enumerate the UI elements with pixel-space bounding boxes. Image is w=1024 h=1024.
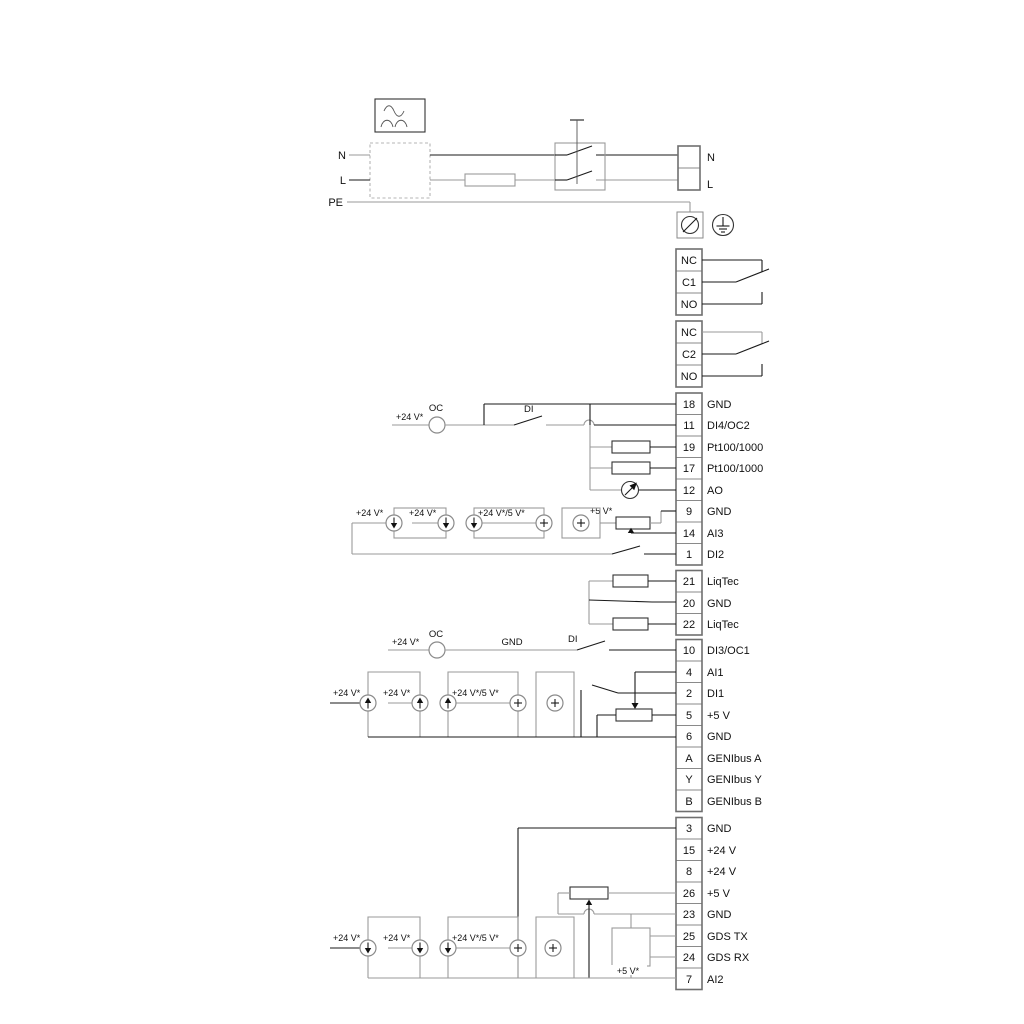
fuse-icon bbox=[465, 174, 515, 186]
di-switch-icon bbox=[592, 685, 618, 693]
open-collector-icon bbox=[429, 417, 445, 433]
terminal-label: LiqTec bbox=[707, 619, 739, 631]
current-source-icon bbox=[360, 695, 376, 711]
terminal-label: DI3/OC1 bbox=[707, 645, 750, 657]
relay2-contact-icon bbox=[702, 332, 769, 376]
terminal-number: 11 bbox=[683, 420, 694, 432]
gds-sensor-box bbox=[612, 928, 650, 966]
analog-output-meter bbox=[590, 482, 676, 499]
v24-5v-label: +24 V*/5 V* bbox=[478, 508, 525, 518]
current-source-icon bbox=[360, 940, 376, 956]
relay1-no: NO bbox=[681, 299, 698, 311]
v24-label: +24 V* bbox=[392, 637, 420, 647]
terminal-number: 4 bbox=[686, 667, 692, 679]
terminal-number: 19 bbox=[683, 442, 695, 454]
terminal-number: 20 bbox=[683, 598, 695, 610]
current-source-icon bbox=[438, 515, 454, 531]
mains-l-label: L bbox=[340, 175, 346, 187]
relay1-com: C1 bbox=[682, 277, 696, 289]
terminal-label: AI2 bbox=[707, 974, 724, 986]
terminal-n-label: N bbox=[707, 152, 715, 164]
terminal-label: DI1 bbox=[707, 688, 724, 700]
terminal-group-3: 10 DI3/OC1 4 AI1 2 DI1 5 +5 V 6 GND A GE… bbox=[676, 640, 762, 812]
resistor-icon bbox=[613, 618, 648, 630]
open-collector-icon bbox=[429, 642, 445, 658]
mains-section: N L PE bbox=[328, 99, 733, 238]
terminal-number: 8 bbox=[686, 866, 692, 878]
resistor-icon bbox=[612, 441, 650, 453]
terminal-number: 18 bbox=[683, 399, 695, 411]
di-switch-icon bbox=[577, 641, 605, 650]
mains-n-label: N bbox=[338, 150, 346, 162]
terminal-number: 15 bbox=[683, 845, 695, 857]
mains-pe-label: PE bbox=[328, 197, 343, 209]
terminal-label: GDS RX bbox=[707, 952, 750, 964]
v24-label: +24 V* bbox=[356, 508, 384, 518]
terminal-label: AI1 bbox=[707, 667, 724, 679]
v24-label: +24 V* bbox=[383, 688, 411, 698]
terminal-label: GENIbus A bbox=[707, 753, 762, 765]
v24-label: +24 V* bbox=[396, 412, 424, 422]
terminal-label: GND bbox=[707, 598, 732, 610]
terminal-label: +24 V bbox=[707, 866, 737, 878]
terminal-label: DI2 bbox=[707, 549, 724, 561]
pt100-sensor-2 bbox=[590, 462, 676, 474]
terminal-label: Pt100/1000 bbox=[707, 463, 763, 475]
voltage-source-icon bbox=[573, 515, 589, 531]
terminal-number: 23 bbox=[683, 909, 695, 921]
terminal-label: GDS TX bbox=[707, 931, 748, 943]
di-switch-icon bbox=[612, 546, 640, 554]
voltage-source-icon bbox=[536, 515, 552, 531]
terminal-number: 26 bbox=[683, 888, 695, 900]
terminal-number: 22 bbox=[683, 619, 695, 631]
terminal-label: Pt100/1000 bbox=[707, 442, 763, 454]
liqtec-circuit bbox=[589, 575, 676, 630]
voltage-source-icon bbox=[547, 695, 563, 711]
terminal-number: 21 bbox=[683, 576, 695, 588]
di-switch-icon bbox=[514, 416, 542, 425]
resistor-icon bbox=[612, 462, 650, 474]
terminal-label: DI4/OC2 bbox=[707, 420, 750, 432]
terminal-number: 3 bbox=[686, 823, 692, 835]
potentiometer-icon bbox=[616, 709, 652, 721]
relay-1-block: NC C1 NO bbox=[676, 249, 769, 315]
wiper-arrow bbox=[586, 900, 592, 906]
v24-5v-label: +24 V*/5 V* bbox=[452, 933, 499, 943]
oc-label: OC bbox=[429, 629, 443, 640]
oc-label: OC bbox=[429, 403, 443, 414]
terminal-number: 12 bbox=[683, 485, 695, 497]
terminal-number: 1 bbox=[686, 549, 692, 561]
terminal-number: 25 bbox=[683, 931, 695, 943]
voltage-source-icon bbox=[545, 940, 561, 956]
di-label: DI bbox=[568, 634, 578, 645]
terminal-number: 14 bbox=[683, 528, 695, 540]
terminal-number: 6 bbox=[686, 731, 692, 743]
gnd-label: GND bbox=[501, 637, 522, 648]
terminal-label: +5 V bbox=[707, 888, 731, 900]
option-frame bbox=[448, 672, 518, 737]
current-source-icon bbox=[440, 940, 456, 956]
v24-5v-label: +24 V*/5 V* bbox=[452, 688, 499, 698]
terminal-label: GND bbox=[707, 731, 732, 743]
ai1-source-options: +24 V* +24 V* +24 V*/5 V* bbox=[330, 672, 676, 737]
terminal-label: LiqTec bbox=[707, 576, 739, 588]
current-source-icon bbox=[466, 515, 482, 531]
pt100-sensor-1 bbox=[590, 441, 676, 453]
current-source-icon bbox=[412, 695, 428, 711]
terminal-number: Y bbox=[685, 774, 693, 786]
di3-oc1-circuit: +24 V* OC GND DI bbox=[388, 629, 676, 658]
voltage-source-icon bbox=[510, 940, 526, 956]
terminal-number: 7 bbox=[686, 974, 692, 986]
terminal-number: B bbox=[685, 796, 692, 808]
potentiometer-icon bbox=[616, 517, 650, 529]
terminal-number: 10 bbox=[683, 645, 695, 657]
terminal-label: GND bbox=[707, 399, 732, 411]
wire-hop bbox=[584, 420, 594, 425]
terminal-number: A bbox=[685, 753, 693, 765]
earth-ground-icon bbox=[713, 215, 734, 236]
current-source-icon bbox=[440, 695, 456, 711]
terminal-number: 2 bbox=[686, 688, 692, 700]
wiper-arrow bbox=[632, 703, 639, 709]
terminal-number: 5 bbox=[686, 710, 692, 722]
terminal-label: GND bbox=[707, 909, 732, 921]
terminal-label: GND bbox=[707, 823, 732, 835]
ai2-source-options: +24 V* +24 V* +24 V*/5 V* bbox=[330, 917, 574, 978]
ai3-source-options: +24 V* +24 V* +24 V*/5 V* +5 V* bbox=[352, 506, 676, 554]
current-source-icon bbox=[386, 515, 402, 531]
terminal-label: GENIbus B bbox=[707, 796, 762, 808]
potentiometer-icon bbox=[570, 887, 608, 899]
terminal-label: +24 V bbox=[707, 845, 737, 857]
filter-box bbox=[370, 143, 430, 198]
current-source-icon bbox=[412, 940, 428, 956]
di-label: DI bbox=[524, 404, 534, 415]
terminal-number: 9 bbox=[686, 506, 692, 518]
terminal-label: +5 V bbox=[707, 710, 731, 722]
v5-label: +5 V* bbox=[617, 966, 640, 976]
v24-label: +24 V* bbox=[383, 933, 411, 943]
terminal-l-label: L bbox=[707, 179, 713, 191]
relay2-no: NO bbox=[681, 371, 698, 383]
terminal-number: 17 bbox=[683, 463, 695, 475]
resistor-icon bbox=[613, 575, 648, 587]
voltage-source-icon bbox=[510, 695, 526, 711]
terminal-label: AO bbox=[707, 485, 723, 497]
terminal-group-4: 3 GND 15 +24 V 8 +24 V 26 +5 V 23 GND 25… bbox=[676, 818, 750, 990]
relay-2-block: NC C2 NO bbox=[676, 321, 769, 387]
mains-wires bbox=[347, 155, 690, 212]
v24-label: +24 V* bbox=[409, 508, 437, 518]
relay2-com: C2 bbox=[682, 349, 696, 361]
terminal-label: AI3 bbox=[707, 528, 724, 540]
v24-label: +24 V* bbox=[333, 933, 361, 943]
relay1-contact-icon bbox=[702, 260, 769, 304]
terminal-group-2: 21 LiqTec 20 GND 22 LiqTec bbox=[676, 571, 739, 636]
terminal-label: GENIbus Y bbox=[707, 774, 762, 786]
relay1-nc: NC bbox=[681, 255, 697, 267]
relay2-nc: NC bbox=[681, 327, 697, 339]
terminal-label: GND bbox=[707, 506, 732, 518]
pe-terminal-icon bbox=[677, 212, 703, 238]
v24-label: +24 V* bbox=[333, 688, 361, 698]
terminal-nl-block: N L bbox=[678, 146, 715, 191]
ac-supply-icon bbox=[375, 99, 425, 132]
wiring-diagram: N L PE bbox=[0, 0, 1024, 1024]
terminal-number: 24 bbox=[683, 952, 695, 964]
terminal-group-1: 18 GND 11 DI4/OC2 19 Pt100/1000 17 Pt100… bbox=[676, 393, 763, 565]
